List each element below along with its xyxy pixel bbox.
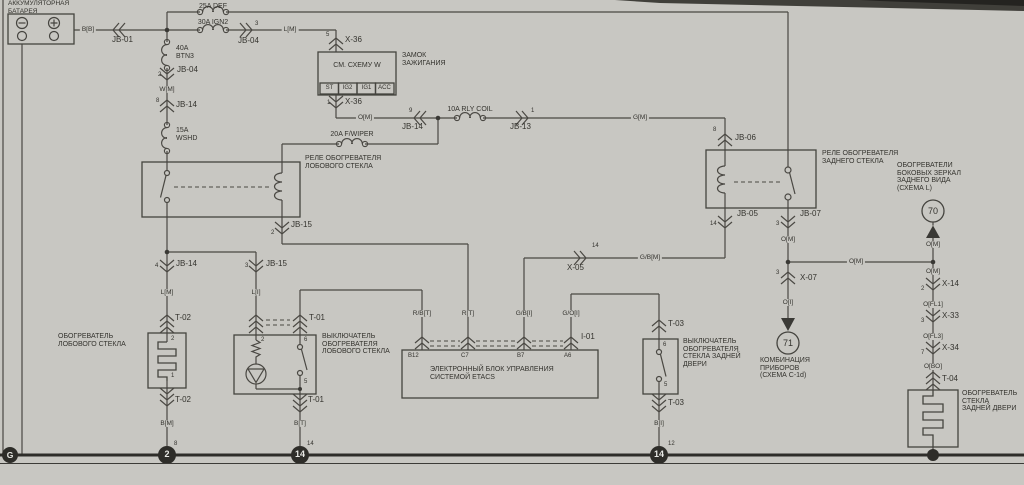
pin-jb07: 3	[776, 221, 779, 227]
battery-icon	[17, 18, 60, 41]
fuse-rlycoil-icon	[454, 113, 485, 121]
resistor-icon	[252, 340, 260, 358]
rear-relay-coil-icon	[718, 166, 726, 193]
rear-relay-box	[706, 150, 816, 208]
connector-t01-top: T-01	[309, 314, 325, 322]
wire-rbt: R/B[T]	[411, 310, 433, 317]
wire-lm-top: L[M]	[282, 26, 299, 33]
cluster-ref: 71	[777, 339, 799, 348]
ground-dot-icon	[927, 449, 939, 461]
rear-relay-label: РЕЛЕ ОБОГРЕВАТЕЛЯ ЗАДНЕГО СТЕКЛА	[822, 150, 898, 165]
connector-t02-bot: T-02	[175, 396, 191, 404]
pin-jb14b: 9	[409, 108, 412, 114]
etacs-label: ЭЛЕКТРОННЫЙ БЛОК УПРАВЛЕНИЯ СИСТЕМОЙ ETA…	[430, 366, 554, 381]
etacs-pin-b7: B7	[517, 353, 524, 359]
pin-jb14c: 4	[155, 263, 158, 269]
wire-bb: B[B]	[80, 26, 96, 33]
wire-bt: B[T]	[292, 420, 308, 427]
pin-ground-14a: 14	[307, 441, 314, 447]
ignition-term-ig2: IG2	[338, 83, 357, 94]
fuse-fwiper-icon	[336, 139, 367, 147]
connector-jb01: JB-01	[112, 36, 133, 44]
pin-x36b: 1	[327, 100, 330, 106]
pin-jb04a: 3	[255, 21, 258, 27]
connector-jb06: JB-06	[735, 134, 756, 142]
ground-bus-label: G	[2, 451, 18, 460]
wire-obo: O[BO]	[922, 363, 944, 370]
connector-jb04b: JB-04	[177, 66, 198, 74]
pin-t01-6: 6	[304, 337, 307, 343]
indicator-lamp-icon	[246, 364, 266, 384]
wire-gbi: G/B[I]	[514, 310, 535, 317]
connector-x36b: X-36	[345, 98, 362, 106]
connector-x33: X-33	[942, 312, 959, 320]
junctions	[165, 28, 940, 391]
ground-bus	[0, 446, 1024, 464]
ignition-term-ig1: IG1	[357, 83, 376, 94]
etacs-pin-c7: C7	[461, 353, 469, 359]
connector-t03-bot: T-03	[668, 399, 684, 407]
connector-t02-top: T-02	[175, 314, 191, 322]
wire-lm-left: L[M]	[159, 289, 176, 296]
ground-14b-label: 14	[650, 450, 668, 459]
etacs-pin-a6: A6	[564, 353, 571, 359]
schematic-lines	[0, 0, 1024, 485]
front-switch-label: ВЫКЛЮЧАТЕЛЬ ОБОГРЕВАТЕЛЯ ЛОБОВОГО СТЕКЛА	[322, 333, 390, 356]
ignition-term-st: ST	[320, 83, 339, 94]
pin-jb15a: 2	[271, 230, 274, 236]
connector-x14: X-14	[942, 280, 959, 288]
connector-jb14c: JB-14	[176, 260, 197, 268]
wire-om-ignition: O[M]	[356, 114, 374, 121]
connector-x05: X-05	[567, 264, 584, 272]
pin-x34: 7	[921, 350, 924, 356]
wire-wm: W[M]	[157, 86, 176, 93]
rear-switch-box	[643, 339, 678, 394]
ground-14a-label: 14	[291, 450, 309, 459]
page-edge-shadow	[615, 0, 1024, 11]
wire-om-m2: O[M]	[924, 268, 942, 275]
connector-x36a: X-36	[345, 36, 362, 44]
component-boxes	[8, 14, 958, 447]
pin-t02-1: 1	[171, 373, 174, 379]
connector-jb07: JB-07	[800, 210, 821, 218]
connector-t01-bot: T-01	[308, 396, 324, 404]
connector-jb04a: JB-04	[238, 37, 259, 45]
pin-x14: 2	[921, 286, 924, 292]
connector-jb05: JB-05	[737, 210, 758, 218]
connector-jb15b: JB-15	[266, 260, 287, 268]
front-heater-label: ОБОГРЕВАТЕЛЬ ЛОБОВОГО СТЕКЛА	[58, 333, 126, 348]
wire-rt: R[T]	[460, 310, 476, 317]
fuse-wshd-icon	[162, 122, 170, 153]
wire-oi: O[I]	[781, 299, 795, 306]
mirror-ref: 70	[922, 207, 944, 216]
pin-jb05: 14	[710, 221, 717, 227]
pin-t03-5: 5	[664, 382, 667, 388]
rear-heater-element-icon	[923, 390, 943, 447]
fuse-ign2-label: 30A IGN2	[198, 19, 228, 27]
rear-heater-label: ОБОГРЕВАТЕЛЬ СТЕКЛА ЗАДНЕЙ ДВЕРИ	[962, 390, 1017, 413]
fuse-def-label: 25A DEF	[199, 3, 227, 11]
pin-t01-2: 2	[261, 337, 264, 343]
fuse-symbols	[162, 7, 486, 154]
wire-gm: G[M]	[631, 114, 649, 121]
pin-x33: 3	[921, 318, 924, 324]
wiring-diagram-page: АККУМУЛЯТОРНАЯ БАТАРЕЯ B[B] JB-01 25A DE…	[0, 0, 1024, 485]
wire-bm: B[M]	[158, 420, 175, 427]
pin-t02-2: 2	[171, 336, 174, 342]
pin-t01-5: 5	[304, 379, 307, 385]
front-relay-coil-icon	[275, 173, 283, 200]
wire-gbm: G/B[M]	[638, 254, 662, 261]
arrow-up-icon	[926, 226, 940, 239]
fuse-btn-icon	[162, 39, 170, 70]
pin-ground-14b: 12	[668, 441, 675, 447]
pin-jb06: 8	[713, 127, 716, 133]
connector-jb13: JB-13	[510, 123, 531, 131]
fuse-btn-label: 40A BTN3	[176, 45, 194, 60]
fuse-fwiper-label: 20A F/WIPER	[330, 131, 373, 139]
fuse-rlycoil-label: 10A RLY COIL	[447, 106, 492, 114]
pin-ground-2: 8	[174, 441, 177, 447]
wire-ofl1: O[FL1]	[921, 301, 945, 308]
ignition-label: ЗАМОК ЗАЖИГАНИЯ	[402, 52, 446, 67]
connector-jb14a: JB-14	[176, 101, 197, 109]
ground-2-label: 2	[158, 450, 176, 459]
dashed-links	[174, 182, 780, 346]
etacs-pin-b12: B12	[408, 353, 419, 359]
wire-om-branch: O[M]	[847, 258, 865, 265]
connector-x34: X-34	[942, 344, 959, 352]
wire-goi: G/O[I]	[560, 310, 581, 317]
fuse-wshd-label: 15A WSHD	[176, 127, 197, 142]
wires	[3, 0, 933, 455]
arrow-down-icon	[781, 318, 795, 331]
connector-jb15a: JB-15	[291, 221, 312, 229]
wire-li: L[I]	[249, 289, 262, 296]
connector-t03-top: T-03	[668, 320, 684, 328]
wire-ofl3: O[FL3]	[921, 333, 945, 340]
ignition-term-acc: ACC	[375, 83, 394, 94]
pin-jb13: 1	[531, 108, 534, 114]
pin-jb14a: 8	[156, 98, 159, 104]
pin-jb15b: 3	[245, 263, 248, 269]
battery-label: АККУМУЛЯТОРНАЯ БАТАРЕЯ	[8, 0, 69, 15]
connector-t04: T-04	[942, 375, 958, 383]
connector-jb14b: JB-14	[402, 123, 423, 131]
pin-x36a: 5	[326, 32, 329, 38]
front-relay-label: РЕЛЕ ОБОГРЕВАТЕЛЯ ЛОБОВОГО СТЕКЛА	[305, 155, 381, 170]
connector-x07: X-07	[800, 274, 817, 282]
connector-i01: I-01	[581, 333, 595, 341]
cluster-label: КОМБИНАЦИЯ ПРИБОРОВ (СХЕМА C-1d)	[760, 357, 810, 380]
rear-switch-label: ВЫКЛЮЧАТЕЛЬ ОБОГРЕВАТЕЛЯ СТЕКЛА ЗАДНЕЙ Д…	[683, 338, 741, 368]
front-switch-box	[234, 335, 316, 394]
footer-bar: ВЫКЛЮЧАТЕЛЬ ОБОГРЕВАТЕЛЯ ЛОБОВОГО ЛА (М)…	[0, 463, 1024, 485]
ignition-note: СМ. СХЕМУ W	[333, 62, 381, 70]
wire-bi: B[I]	[652, 420, 666, 427]
wire-om-m1: O[M]	[924, 241, 942, 248]
pin-jb04b: 2	[158, 72, 161, 78]
mirror-label: ОБОГРЕВАТЕЛИ БОКОВЫХ ЗЕРКАЛ ЗАДНЕГО ВИДА…	[897, 162, 961, 192]
pin-t03-6: 6	[663, 342, 666, 348]
pin-x05: 14	[592, 243, 599, 249]
pin-x07: 3	[776, 270, 779, 276]
wire-om-relay: O[M]	[779, 236, 797, 243]
